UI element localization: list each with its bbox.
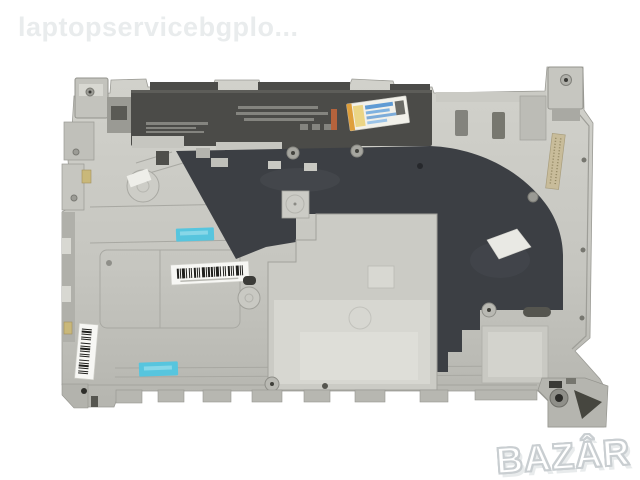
bazar-logo: BAZÂR <box>494 431 631 480</box>
barcode-label-horizontal <box>171 261 250 285</box>
product-photo <box>0 0 640 480</box>
bottom-right-bracket <box>538 378 608 427</box>
gold-contact-pad <box>64 322 72 334</box>
dark-connector <box>243 276 256 285</box>
cyan-tape-1 <box>176 227 214 241</box>
slot-opening <box>523 307 551 317</box>
cyan-tape-2 <box>139 361 178 376</box>
hinge-mount-right <box>548 67 583 121</box>
bottom-edge-teeth <box>116 390 537 403</box>
port-ring <box>238 287 260 309</box>
gold-contact-pad <box>82 170 91 183</box>
page: laptopservicebgplo... <box>0 0 640 480</box>
square-cutout <box>282 191 309 218</box>
orange-component <box>331 109 337 130</box>
